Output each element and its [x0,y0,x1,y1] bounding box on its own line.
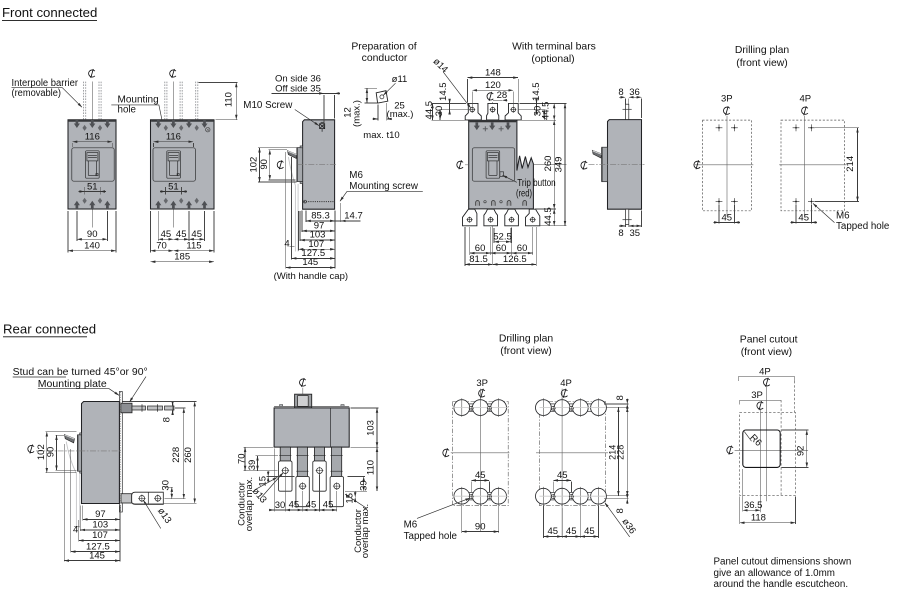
svg-text:M6: M6 [349,170,363,181]
svg-text:36: 36 [629,87,640,98]
svg-text:M6: M6 [836,210,850,221]
svg-text:4: 4 [284,239,289,250]
svg-text:8: 8 [615,508,626,513]
svg-text:(With handle cap): (With handle cap) [274,271,348,282]
svg-text:52.5: 52.5 [493,231,512,242]
svg-text:51: 51 [168,181,179,192]
svg-text:39: 39 [359,480,370,491]
svg-text:349: 349 [554,157,565,173]
svg-text:(front view): (front view) [741,347,792,358]
svg-text:Panel cutout: Panel cutout [740,335,798,346]
svg-text:44.5: 44.5 [541,102,552,121]
svg-text:3P: 3P [721,94,733,105]
svg-text:28: 28 [497,90,508,101]
svg-text:hole: hole [118,104,137,115]
svg-text:Drilling plan: Drilling plan [735,45,790,56]
svg-text:228: 228 [616,445,626,460]
svg-text:97: 97 [95,509,106,520]
svg-text:14.7: 14.7 [344,211,363,222]
svg-text:45: 45 [191,229,202,240]
svg-text:M10 Screw: M10 Screw [243,100,293,111]
svg-text:118: 118 [751,513,766,524]
svg-text:around the handle escutcheon.: around the handle escutcheon. [714,579,849,590]
svg-text:Rear connected: Rear connected [3,322,96,337]
svg-text:60: 60 [475,243,486,254]
svg-text:51: 51 [87,181,98,192]
svg-text:45: 45 [798,212,809,223]
svg-text:145: 145 [89,550,105,561]
svg-text:8: 8 [618,87,623,98]
svg-text:Off side 35: Off side 35 [275,84,321,95]
svg-text:conductor: conductor [362,53,408,64]
svg-text:Drilling plan: Drilling plan [499,334,554,345]
svg-text:39: 39 [247,460,258,471]
svg-text:44.5: 44.5 [543,207,554,226]
svg-text:14.5: 14.5 [531,82,542,101]
svg-text:115: 115 [186,240,201,251]
svg-text:4P: 4P [759,367,771,378]
svg-text:45: 45 [722,212,733,223]
svg-text:3P: 3P [751,390,763,401]
svg-text:92: 92 [796,446,807,457]
svg-text:260: 260 [543,156,554,172]
svg-text:With terminal bars: With terminal bars [512,42,596,53]
svg-text:103: 103 [92,520,108,531]
svg-text:103: 103 [365,420,376,436]
svg-text:30: 30 [275,500,286,511]
svg-text:max. t10: max. t10 [363,130,399,141]
svg-text:45: 45 [584,526,595,537]
svg-text:148: 148 [485,67,501,78]
svg-text:185: 185 [174,251,190,262]
svg-text:116: 116 [166,131,181,142]
svg-text:3P: 3P [476,378,488,389]
svg-text:228: 228 [171,447,182,463]
svg-text:ø11: ø11 [392,74,408,85]
svg-text:45: 45 [566,526,577,537]
svg-text:overlap max.: overlap max. [360,504,371,558]
svg-text:Tapped hole: Tapped hole [836,221,890,232]
svg-text:30: 30 [434,106,445,117]
svg-text:45: 45 [306,500,317,511]
svg-text:60: 60 [517,243,528,254]
svg-text:give an allowance of 1.0mm: give an allowance of 1.0mm [714,568,835,579]
svg-text:(red): (red) [516,189,532,200]
svg-text:110: 110 [365,460,376,475]
svg-text:overlap max.: overlap max. [244,477,255,531]
svg-text:(front view): (front view) [736,58,787,69]
svg-text:(max.): (max.) [352,100,363,127]
svg-text:Front connected: Front connected [2,5,97,20]
svg-text:116: 116 [85,131,100,142]
svg-text:107: 107 [92,530,108,541]
svg-text:140: 140 [84,240,100,251]
svg-text:214: 214 [845,156,856,172]
svg-text:60: 60 [496,243,507,254]
svg-text:Stud can be turned 45°or 90°: Stud can be turned 45°or 90° [13,367,148,378]
svg-text:90: 90 [45,447,56,458]
svg-text:(max.): (max.) [387,109,414,120]
svg-text:45: 45 [548,526,559,537]
svg-text:14.5: 14.5 [438,82,449,101]
svg-text:102: 102 [248,157,259,173]
svg-text:Preparation of: Preparation of [351,42,416,53]
svg-text:90: 90 [87,229,98,240]
svg-text:Tapped hole: Tapped hole [404,531,458,542]
svg-text:45: 45 [323,500,334,511]
svg-text:Panel cutout dimensions shown: Panel cutout dimensions shown [714,557,852,568]
svg-text:45: 45 [176,229,187,240]
svg-text:45: 45 [161,229,172,240]
svg-text:Mounting screw: Mounting screw [349,181,419,192]
svg-text:8: 8 [161,417,172,422]
svg-text:260: 260 [183,447,194,463]
svg-text:45: 45 [475,470,486,481]
svg-text:(removable): (removable) [12,88,62,99]
svg-text:81.5: 81.5 [469,254,488,265]
svg-text:4: 4 [73,525,78,536]
svg-text:30: 30 [160,480,171,491]
svg-text:8: 8 [618,228,623,239]
svg-text:4P: 4P [799,94,811,105]
svg-text:M6: M6 [404,520,418,531]
svg-text:4P: 4P [560,378,572,389]
svg-text:(front view): (front view) [500,346,551,357]
svg-text:36.5: 36.5 [744,500,763,511]
svg-text:90: 90 [259,159,270,170]
svg-text:70: 70 [236,453,247,464]
svg-text:145: 145 [302,257,318,268]
svg-text:70: 70 [156,240,167,251]
svg-text:Mounting plate: Mounting plate [38,379,107,390]
svg-text:45: 45 [557,470,568,481]
svg-text:110: 110 [224,92,235,107]
svg-text:126.5: 126.5 [503,254,527,265]
svg-text:45: 45 [289,500,300,511]
svg-text:90: 90 [475,521,486,532]
svg-text:(optional): (optional) [531,54,574,65]
svg-text:35: 35 [630,228,641,239]
svg-text:8: 8 [615,395,626,400]
